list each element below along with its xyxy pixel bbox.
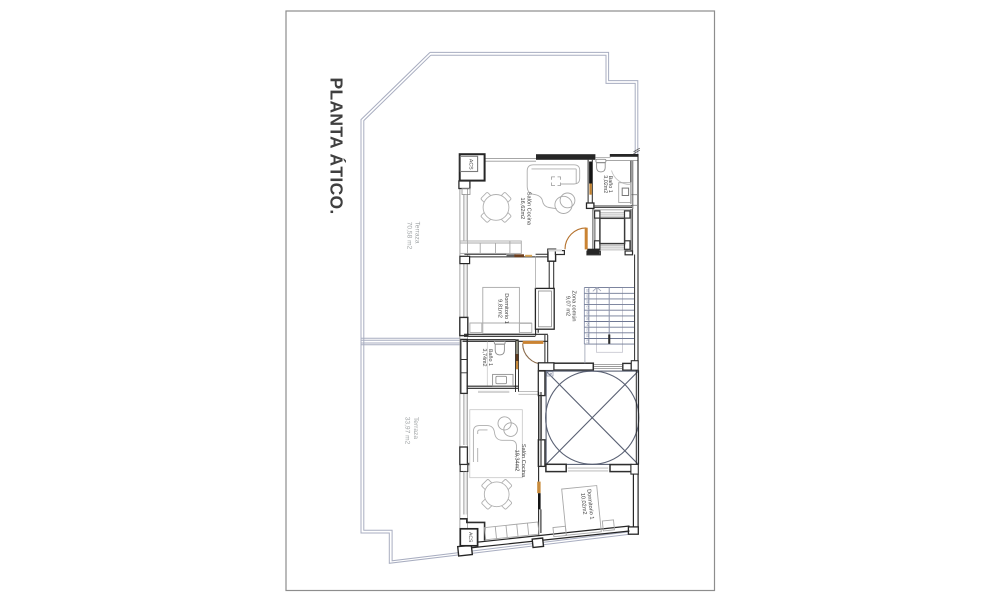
svg-text:06: 06	[586, 311, 590, 315]
svg-text:3,74m2: 3,74m2	[481, 349, 487, 367]
svg-text:19,34m2: 19,34m2	[514, 450, 520, 472]
svg-text:01: 01	[586, 340, 590, 344]
svg-text:05: 05	[586, 317, 590, 321]
svg-text:70,58 m2: 70,58 m2	[406, 222, 413, 250]
svg-text:33,97 m2: 33,97 m2	[404, 417, 411, 445]
svg-text:08: 08	[586, 300, 590, 304]
svg-text:10,02m2: 10,02m2	[579, 493, 587, 515]
svg-text:Salón Cocina: Salón Cocina	[526, 192, 533, 226]
svg-text:9,81m2: 9,81m2	[496, 299, 502, 318]
svg-text:Terraza: Terraza	[412, 417, 419, 439]
svg-text:03: 03	[586, 328, 590, 332]
svg-text:3,02m2: 3,02m2	[602, 175, 608, 193]
svg-text:Baño 1: Baño 1	[487, 349, 493, 366]
svg-text:Terraza: Terraza	[414, 222, 421, 244]
svg-text:PLANTA ÁTICO.: PLANTA ÁTICO.	[327, 78, 347, 215]
svg-text:Dormitorio 1: Dormitorio 1	[503, 293, 510, 323]
svg-text:9,07 m2: 9,07 m2	[564, 296, 570, 316]
svg-text:04: 04	[586, 323, 590, 327]
svg-text:Salón Cocina: Salón Cocina	[520, 444, 527, 478]
svg-text:16,62m2: 16,62m2	[519, 198, 525, 220]
svg-text:09: 09	[586, 294, 590, 298]
svg-text:ACS: ACS	[467, 159, 473, 170]
svg-text:Zona común: Zona común	[571, 290, 578, 321]
svg-text:02: 02	[586, 334, 590, 338]
svg-text:10: 10	[586, 289, 590, 293]
svg-text:ACS: ACS	[467, 532, 473, 543]
svg-text:07: 07	[586, 306, 590, 310]
